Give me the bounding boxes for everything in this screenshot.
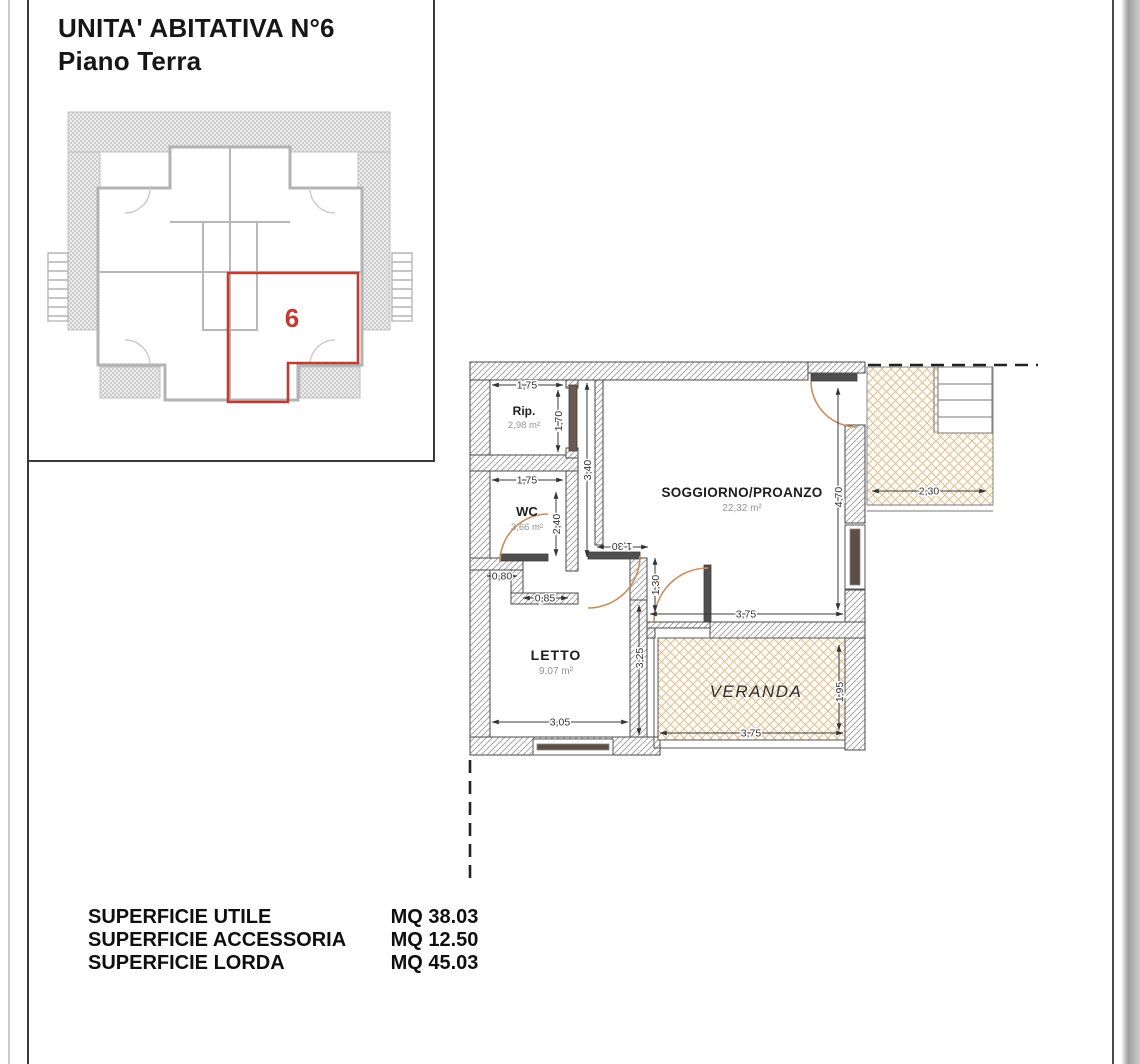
dim-label: 3,25 xyxy=(634,648,646,669)
wall-segment xyxy=(470,455,578,471)
summary-label: SUPERFICIE LORDA xyxy=(88,952,385,975)
dim-label: 2,40 xyxy=(551,514,563,535)
dim-label: 3,75 xyxy=(741,728,762,740)
door-leaf-veranda xyxy=(704,565,711,622)
room-area-wc: 3,66 m² xyxy=(511,522,543,533)
door-leaf-wc xyxy=(500,554,548,561)
summary-value: MQ 38.03 xyxy=(391,906,479,928)
door-leaf-hall xyxy=(588,552,640,559)
dim-label: 3,40 xyxy=(582,460,594,481)
wall-segment xyxy=(647,622,710,628)
wall-segment xyxy=(595,380,603,545)
key-plan-stairs-right xyxy=(392,253,412,321)
dim-label: 1,70 xyxy=(553,411,565,432)
floor-plan-canvas: 6 xyxy=(0,0,1140,1064)
dim-label: 1,75 xyxy=(517,475,538,487)
dim-label: 1,95 xyxy=(834,682,846,703)
dim-label: 1,75 xyxy=(517,380,538,392)
key-plan-stairs-left xyxy=(48,253,68,321)
window-soggiorno xyxy=(845,525,865,589)
area-summary: SUPERFICIE UTILE MQ 38.03 SUPERFICIE ACC… xyxy=(88,906,478,975)
summary-value: MQ 45.03 xyxy=(391,952,479,974)
dim-label: 1,30 xyxy=(650,575,662,596)
dim-label: 4,70 xyxy=(833,487,845,508)
unit-plan: 1,75 1,70 3,40 1,75 2,40 0,80 0,85 1,30 … xyxy=(470,362,1038,878)
key-plan: 6 xyxy=(48,112,412,402)
summary-label: SUPERFICIE UTILE xyxy=(88,906,385,929)
dim-label: 3,75 xyxy=(736,609,757,621)
window-letto xyxy=(533,739,613,755)
summary-value: MQ 12.50 xyxy=(391,929,479,951)
wall-segment xyxy=(710,622,865,638)
dim-label: 0,85 xyxy=(535,593,556,605)
summary-label: SUPERFICIE ACCESSORIA xyxy=(88,929,385,952)
summary-row: SUPERFICIE ACCESSORIA MQ 12.50 xyxy=(88,929,478,952)
summary-row: SUPERFICIE UTILE MQ 38.03 xyxy=(88,906,478,929)
room-name-veranda: VERANDA xyxy=(710,682,803,701)
wall-segment xyxy=(470,362,808,380)
room-name-rip: Rip. xyxy=(513,404,536,418)
door-leaf-rip xyxy=(569,385,577,451)
room-name-soggiorno: SOGGIORNO/PROANZO xyxy=(661,485,822,500)
wall-segment xyxy=(808,362,865,373)
drawing-sheet: UNITA' ABITATIVA N°6 Piano Terra xyxy=(0,0,1140,1064)
door-arc-entrance xyxy=(811,381,857,427)
dim-label: 2,30 xyxy=(919,486,940,498)
summary-row: SUPERFICIE LORDA MQ 45.03 xyxy=(88,952,478,975)
room-area-letto: 9,07 m² xyxy=(539,666,574,677)
wall-segment xyxy=(566,471,578,571)
room-name-letto: LETTO xyxy=(531,647,582,663)
room-name-wc: WC xyxy=(516,504,538,519)
wall-segment xyxy=(845,590,865,750)
wall-segment xyxy=(845,425,865,523)
unit6-number: 6 xyxy=(285,303,299,333)
dim-label: 3,05 xyxy=(550,717,571,729)
room-area-rip: 2,98 m² xyxy=(508,420,540,431)
dim-label: 1,30 xyxy=(612,540,633,552)
dim-label: 0,80 xyxy=(492,571,513,583)
room-area-soggiorno: 22,32 m² xyxy=(722,503,762,514)
door-leaf-entrance xyxy=(811,374,857,381)
